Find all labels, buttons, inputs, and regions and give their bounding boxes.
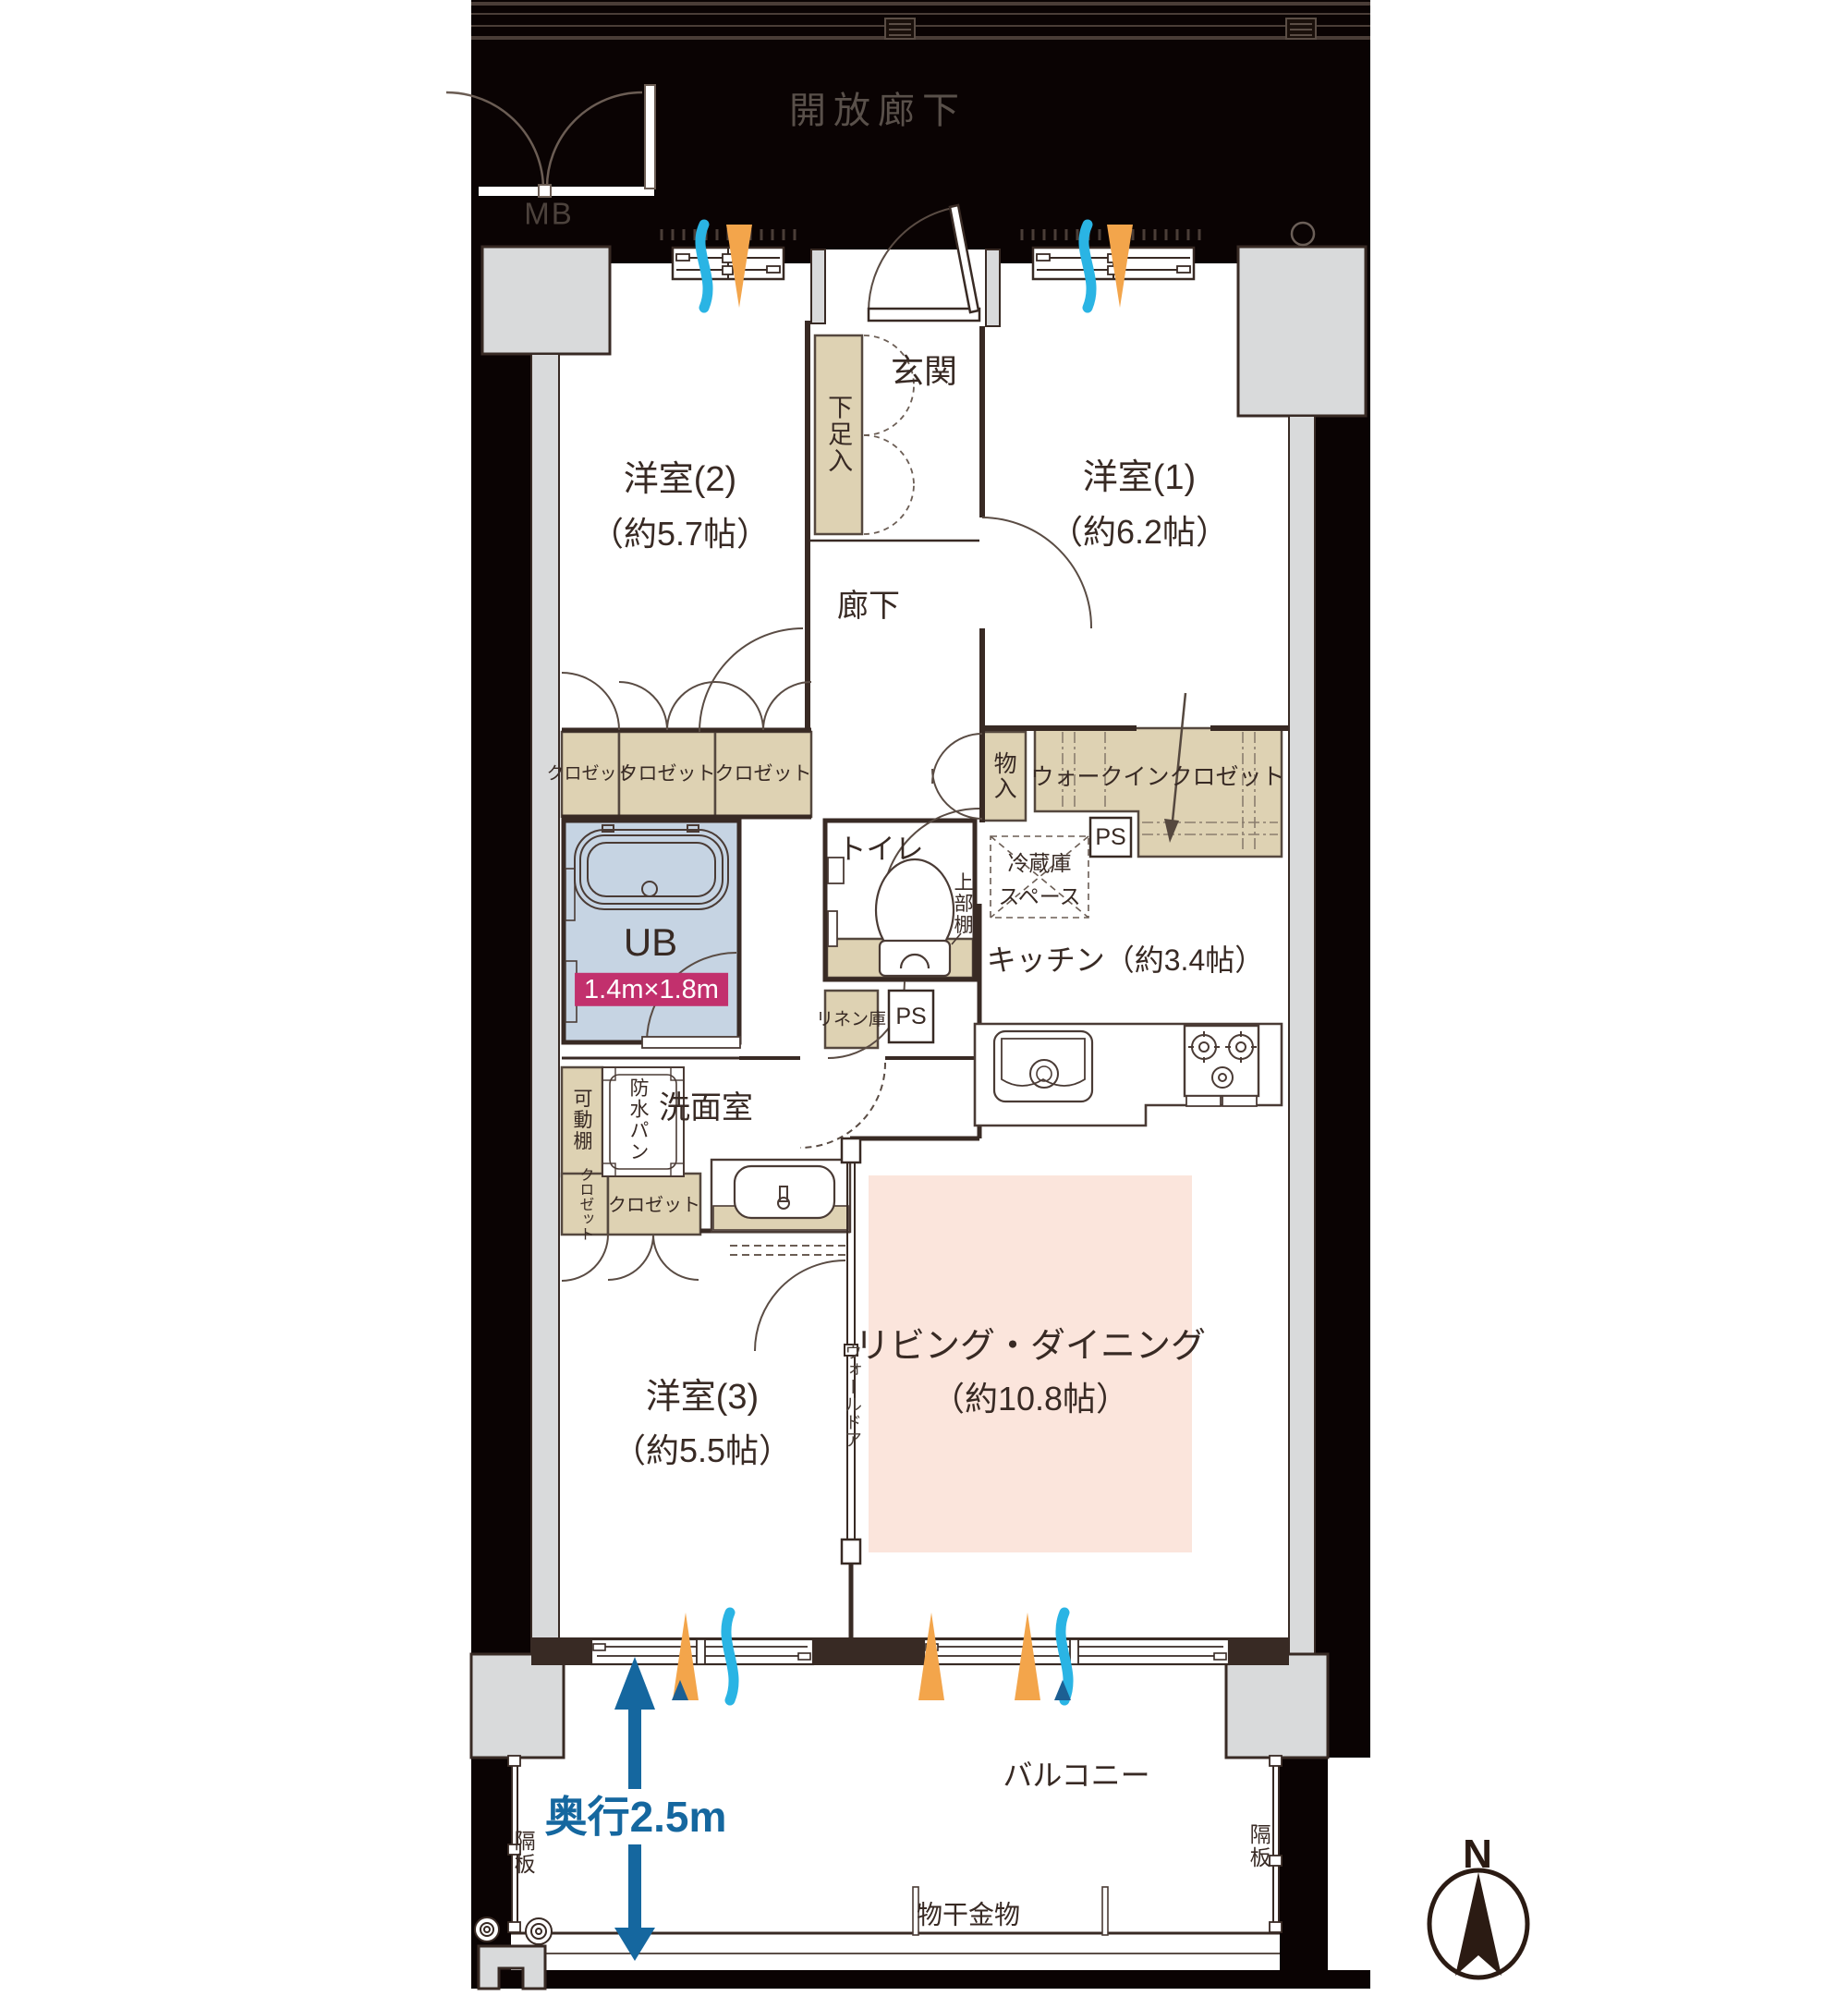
- room1-size-label: （約6.2帖）: [1050, 515, 1229, 550]
- unit-bath-label: UB: [624, 922, 677, 963]
- balcony-depth-label: 奥行2.5m: [545, 1795, 727, 1839]
- room1-name-label: 洋室(1): [1083, 460, 1196, 497]
- pipe-space-label: PS: [1095, 825, 1125, 849]
- living-dining-name-label: リビング・ダイニング: [855, 1329, 1206, 1366]
- waterproof-pan-label: 防水パン: [627, 1077, 648, 1162]
- room3-name-label: 洋室(3): [646, 1380, 759, 1417]
- room3-size-label: （約5.5帖）: [613, 1433, 792, 1468]
- shoe-box-label: 下足入: [825, 395, 851, 475]
- meter-box-label: MB: [524, 199, 574, 231]
- living-balcony-window: [924, 1639, 1229, 1664]
- walk-in-closet-label: ウォークインクロゼット: [1030, 765, 1284, 789]
- vanity-basin: [711, 1160, 850, 1232]
- laundry-hardware-label: 物干金物: [917, 1901, 1020, 1928]
- balcony-outer-edge: [471, 1970, 1370, 1989]
- closet-label: クロゼット: [608, 1197, 700, 1216]
- entrance-label: 玄関: [891, 354, 957, 389]
- kitchen-label: キッチン（約3.4帖）: [987, 945, 1265, 977]
- fridge-space-label: 冷蔵庫: [1008, 852, 1072, 874]
- room2-size-label: （約5.7帖）: [590, 517, 770, 552]
- linen-label: リネン庫: [816, 1011, 886, 1029]
- storage-label: 物入: [991, 751, 1015, 801]
- corridor-drain-grate-icon: [1286, 18, 1316, 39]
- compass-north-label: N: [1463, 1833, 1492, 1876]
- movable-shelf-label: 可動棚: [571, 1089, 591, 1152]
- compass-icon: [1429, 1870, 1527, 1978]
- corridor-drain-grate-icon: [885, 18, 915, 39]
- closet-label: クロゼット: [715, 764, 812, 785]
- room2-window: [673, 248, 784, 279]
- washroom-label: 洗面室: [659, 1092, 753, 1126]
- open-corridor-label: 開放廊下: [789, 91, 967, 130]
- floorplan-drawing: [0, 0, 1848, 1996]
- closet-label: クロゼット: [577, 1167, 592, 1241]
- partition-board-label: 隔板: [1247, 1823, 1270, 1869]
- partition-board-label: 隔板: [512, 1830, 534, 1876]
- balcony-label: バルコニー: [1003, 1760, 1149, 1792]
- toilet-label: トイレ: [838, 835, 924, 866]
- unit-bath-size-badge: 1.4m×1.8m: [575, 973, 728, 1006]
- fridge-space-label: スペース: [998, 885, 1080, 907]
- living-dining-size-label: （約10.8帖）: [931, 1381, 1129, 1417]
- hallway-label: 廊下: [837, 590, 900, 624]
- room3-balcony-window: [591, 1639, 813, 1664]
- upper-shelf-label: 上部棚: [952, 872, 972, 936]
- room2-name-label: 洋室(2): [624, 462, 736, 499]
- floorplan-canvas: 開放廊下 MB 玄関 下足入 洋室(2) （約5.7帖） 洋室(1) （約6.2…: [0, 0, 1848, 1996]
- neighbor-balcony-sliver: [1328, 1758, 1370, 1973]
- pipe-space-label: PS: [895, 1004, 926, 1028]
- closet-label: クロゼット: [619, 764, 716, 785]
